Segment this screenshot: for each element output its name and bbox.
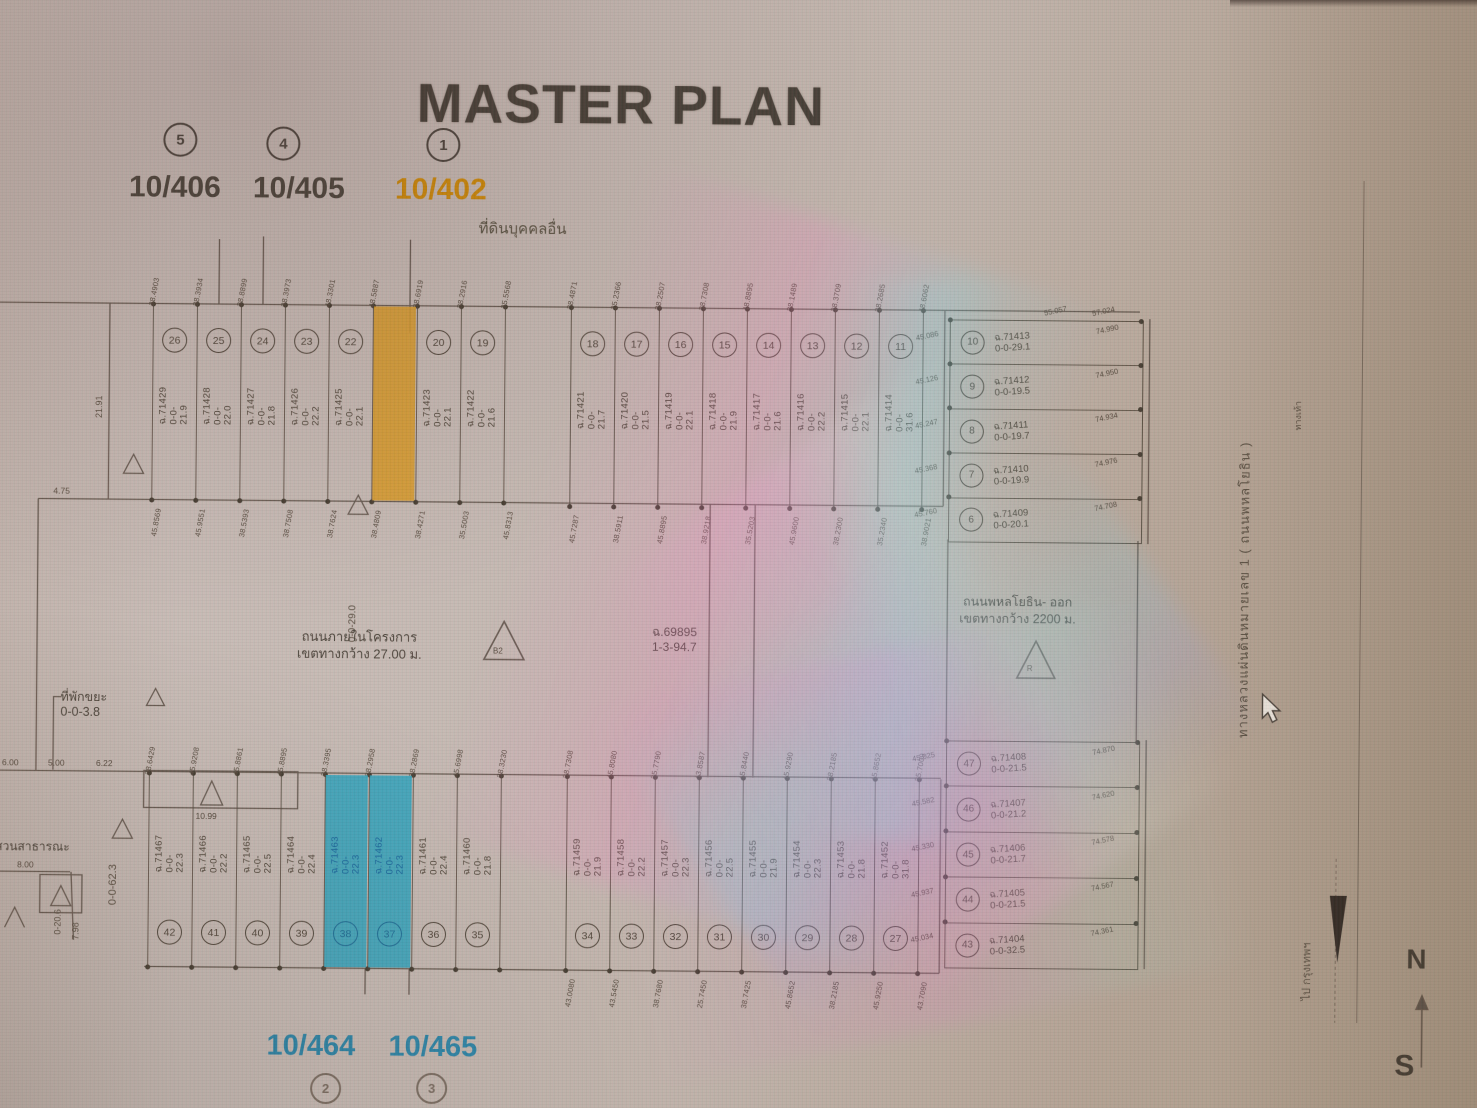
lot-number-circle: 8	[960, 419, 984, 443]
lot-label: ฉ.714260-0-22.2	[290, 388, 322, 426]
compass-south-label: S	[1394, 1049, 1414, 1083]
lot-number-circle: 17	[624, 332, 649, 357]
lot-area: 0-0-22.2	[627, 839, 648, 877]
lot-label: ฉ.714250-0-22.1	[334, 388, 366, 426]
triangle-waste	[146, 688, 164, 705]
lot-strip: 26ฉ.714290-0-21.9	[151, 303, 197, 499]
lot-strip	[371, 305, 417, 501]
lot-number-circle: 10	[961, 330, 985, 354]
lot-number-circle: 33	[619, 924, 644, 949]
lot-number-circle: 12	[844, 333, 869, 358]
lot-strip: 16ฉ.714190-0-22.1	[657, 308, 703, 507]
lot-label: ฉ.714570-0-22.3	[660, 840, 692, 878]
stem-lot25	[219, 239, 220, 304]
lot-number-circle: 16	[668, 332, 693, 357]
lot-area: 0-0-21.9	[583, 839, 604, 877]
lot-number-circle: 32	[663, 924, 688, 949]
lot-area: 0-0-21.5	[631, 392, 652, 430]
lot-strip: 36ฉ.714610-0-22.4	[411, 775, 457, 969]
lot-number-circle: 43	[955, 933, 979, 957]
internal-road-width: เขตทางกว้าง 27.00 ม.	[297, 645, 422, 663]
compass-arrow-head	[1416, 996, 1428, 1010]
lot-area: 0-0-32.5	[989, 945, 1025, 958]
lot-strip: 14ฉ.714170-0-21.6	[745, 309, 791, 508]
triangle-road-internal	[484, 621, 524, 659]
boundary-dot	[948, 317, 953, 322]
lot-label: ฉ.714280-0-22.0	[202, 387, 234, 425]
mid-parcel-right	[753, 505, 755, 778]
lot-area: 0-0-21.6	[763, 393, 784, 431]
lot-number-circle: 37	[377, 921, 402, 946]
lot-number-circle: 9	[960, 375, 984, 399]
lot-label: ฉ.714290-0-21.9	[158, 387, 190, 425]
lot-label: ฉ.71406 0-0-21.7	[990, 843, 1027, 866]
park-dim-line	[0, 871, 70, 872]
lot-area: 0-0-22.2	[301, 388, 322, 426]
boundary-dot	[1138, 452, 1143, 457]
lot-label: ฉ.714670-0-22.3	[154, 835, 186, 873]
mid-parcel-area: 1-3-94.7	[652, 640, 697, 655]
lot-number-circle: 41	[201, 920, 226, 945]
lot-label: ฉ.714230-0-22.1	[422, 389, 454, 427]
triangle-road-exit	[1017, 641, 1055, 678]
lot-number-circle: 22	[338, 329, 363, 354]
lot-area: 0-0-21.9	[759, 840, 780, 878]
lot-label: ฉ.714630-0-22.3	[330, 837, 362, 875]
lot-strip: 18ฉ.714210-0-21.7	[569, 307, 615, 506]
lot-number-circle: 44	[956, 888, 980, 912]
lot-area: 0-0-22.1	[675, 393, 696, 431]
lot-strip: 19ฉ.714220-0-21.6	[459, 306, 505, 502]
lot-label: ฉ.714150-0-22.1	[840, 394, 872, 432]
lot-number-circle: 20	[426, 330, 451, 355]
lot-strip: 30ฉ.714550-0-21.9	[741, 778, 787, 972]
lot-number-circle: 35	[465, 922, 490, 947]
lot-area: 0-0-21.6	[477, 389, 498, 427]
lot-strip: 17ฉ.714200-0-21.5	[613, 307, 659, 506]
dim-park-width: 8.00	[17, 859, 34, 869]
boundary-dot	[944, 738, 949, 743]
lot-number-circle: 23	[294, 329, 319, 354]
lot-strip: 28ฉ.714530-0-21.8	[829, 778, 875, 972]
lot-area: 0-0-21.7	[990, 854, 1026, 867]
lot-strip: 42ฉ.714670-0-22.3	[147, 772, 193, 966]
lot-area: 0-0-19.5	[994, 386, 1030, 399]
lot-number-circle: 34	[575, 923, 600, 948]
to-south-label: ไป กรุงเทพฯ	[1297, 943, 1316, 1001]
lot-area: 0-0-21.8	[257, 387, 278, 425]
lot-strip: 22ฉ.714250-0-22.1	[327, 305, 373, 501]
lot-area: 0-0-22.5	[715, 840, 736, 878]
lot-area: 0-0-22.3	[385, 837, 406, 875]
lot-strip: 15ฉ.714180-0-21.9	[701, 308, 747, 507]
lot-label: ฉ.714190-0-22.1	[664, 393, 696, 431]
lot-number-circle: 24	[250, 328, 275, 353]
sidewalk-label: ทางเท้า	[1291, 401, 1305, 431]
boundary-dot	[947, 450, 952, 455]
lot-number-circle: 31	[707, 924, 732, 949]
dim-5-00: 5.00	[48, 758, 65, 768]
highway-name-label: ทางหลวงแผ่นดินหมายเลข 1 ( ถนนพหลโยธิน )	[1232, 441, 1256, 738]
lot-area: 0-0-22.1	[851, 394, 872, 432]
lot-label: ฉ.714580-0-22.2	[616, 839, 648, 877]
lot-label: ฉ.714140-0-31.6	[884, 394, 916, 432]
lot-area: 0-0-21.9	[719, 393, 740, 431]
lot-strip: 33ฉ.714580-0-22.2	[609, 776, 655, 970]
lot-number-circle: 46	[956, 797, 980, 821]
exit-road-width: เขตทางกว้าง 2200 ม.	[959, 611, 1076, 629]
lot-area: 0-0-22.1	[433, 389, 454, 427]
lot-number-circle: 26	[162, 328, 187, 353]
boundary-dot	[1135, 740, 1140, 745]
lot-area: 0-0-29.1	[995, 342, 1031, 355]
internal-road-symbol: B2	[493, 646, 503, 655]
lot-strip: 32ฉ.714570-0-22.3	[653, 777, 699, 971]
dim-6-22: 6.22	[96, 758, 113, 768]
lot-area: 0-0-21.9	[169, 387, 190, 425]
lot-strip: 31ฉ.714560-0-22.5	[697, 777, 743, 971]
lot-number-circle: 28	[839, 925, 864, 950]
lot-label: ฉ.714560-0-22.5	[704, 840, 736, 878]
lot-number-circle: 30	[751, 925, 776, 950]
lot-label: ฉ.71408 0-0-21.5	[990, 753, 1027, 776]
lot-area: 0-0-21.8	[473, 838, 494, 876]
lot-strip: 38ฉ.714630-0-22.3	[323, 774, 369, 968]
lot-number-circle: 36	[421, 922, 446, 947]
lot-area: 0-0-22.4	[297, 836, 318, 874]
lot-number-circle: 45	[956, 843, 980, 867]
dim-6-00: 6.00	[2, 757, 19, 767]
dim-park-height2: 7.98	[70, 922, 80, 940]
boundary-dot	[943, 874, 948, 879]
lot-area: 0-0-21.5	[991, 763, 1027, 776]
lot-number-circle: 47	[957, 752, 981, 776]
exit-road-symbol: R	[1027, 664, 1033, 673]
lot-number-circle: 29	[795, 925, 820, 950]
park-square	[40, 874, 82, 912]
lot-label: ฉ.714200-0-21.5	[620, 392, 652, 430]
compass-arrow-line	[1421, 1004, 1422, 1068]
lot-number-circle: 7	[959, 463, 983, 487]
internal-road-label: ถนนภายในโครงการ เขตทางกว้าง 27.00 ม.	[297, 628, 422, 663]
lot-number-circle: 6	[959, 508, 983, 532]
lot-strip: 13ฉ.714160-0-22.2	[789, 309, 835, 508]
lot-number-circle: 40	[245, 920, 270, 945]
lot-label: ฉ.714540-0-22.3	[792, 841, 824, 879]
compass-north-label: N	[1406, 943, 1427, 975]
lot-label: ฉ.714220-0-21.6	[466, 389, 498, 427]
lot-label: ฉ.71412 0-0-19.5	[994, 376, 1031, 399]
band2-right-edge	[939, 779, 941, 973]
lot-label: ฉ.71410 0-0-19.9	[993, 464, 1030, 487]
lot-number-circle: 14	[756, 333, 781, 358]
boundary-dot	[1139, 319, 1144, 324]
highway-edge-line	[1357, 181, 1364, 1023]
lot-number-circle: 38	[333, 921, 358, 946]
lot-label: ฉ.714160-0-22.2	[796, 394, 828, 432]
lot-label: ฉ.71405 0-0-21.5	[989, 889, 1026, 912]
lot-label: ฉ.71411 0-0-19.7	[993, 420, 1030, 443]
lot-block: 47 ฉ.71408 0-0-21.546 ฉ.71407 0-0-21.245	[944, 740, 1140, 970]
lot-label: ฉ.714550-0-21.9	[748, 840, 780, 878]
lot-strip: 37ฉ.714620-0-22.3	[367, 774, 413, 968]
lot-label: ฉ.714270-0-21.8	[246, 387, 278, 425]
lot-label: ฉ.71413 0-0-29.1	[994, 331, 1031, 354]
dim-left-mid: 4.75	[53, 486, 70, 496]
lot-number-circle: 39	[289, 921, 314, 946]
park-label: สวนสาธารณะ	[0, 839, 70, 855]
lot-number-circle: 27	[883, 926, 908, 951]
boundary-dot	[1134, 921, 1139, 926]
lot-label: ฉ.71407 0-0-21.2	[990, 798, 1027, 821]
stem-lot24	[263, 236, 264, 304]
park-square-triangle	[51, 886, 71, 906]
band1-right-edge	[943, 310, 945, 506]
mouse-cursor	[1262, 694, 1280, 722]
boundary-dot	[943, 919, 948, 924]
lot-label: ฉ.714640-0-22.4	[286, 836, 318, 874]
lot-number-circle: 25	[206, 328, 231, 353]
lot-strip: 39ฉ.714640-0-22.4	[279, 774, 325, 968]
lot-area: 0-0-19.7	[994, 430, 1030, 443]
waste-area: 0-0-3.8	[60, 705, 107, 720]
lot-label: ฉ.714530-0-21.8	[836, 841, 868, 879]
block-gap-right	[1136, 541, 1138, 742]
boundary-dot	[1134, 876, 1139, 881]
lot-strip: 29ฉ.714540-0-22.3	[785, 778, 831, 972]
mid-parcel-deed: ฉ.69895	[652, 625, 697, 640]
chevron-mark	[5, 907, 25, 927]
left-inner-line	[108, 303, 110, 499]
lot-strip: 12ฉ.714150-0-22.1	[833, 309, 879, 508]
lot-area: 0-0-21.2	[991, 808, 1027, 821]
lot-label: ฉ.714660-0-22.2	[198, 836, 230, 874]
mid-parcel-left	[708, 504, 710, 777]
dim-park-height: 0-20.6	[52, 909, 62, 935]
photographed-screen: { "header": { "title": "MASTER PLAN", "n…	[0, 0, 1477, 1108]
lot-label: ฉ.714620-0-22.3	[374, 837, 406, 875]
dim-left-top: 21.91	[94, 395, 104, 418]
lot-label: ฉ.714180-0-21.9	[708, 393, 740, 431]
lot-number-circle: 11	[888, 334, 913, 359]
mid-parcel-annotation: ฉ.69895 1-3-94.7	[652, 625, 697, 655]
lot-strip: 34ฉ.714590-0-21.9	[565, 776, 611, 970]
internal-road-name: ถนนภายในโครงการ	[297, 628, 422, 646]
lot-area: 0-0-20.1	[993, 519, 1029, 532]
lot-number-circle: 18	[580, 331, 605, 356]
block-outer-edge-top	[1148, 319, 1150, 544]
lot-strip: 24ฉ.714270-0-21.8	[239, 304, 285, 500]
lot-number-circle: 42	[157, 920, 182, 945]
lot-area: 0-0-22.3	[803, 841, 824, 879]
south-direction-arrow	[1329, 896, 1347, 963]
lot-area: 0-0-22.4	[429, 838, 450, 876]
lot-area: 0-0-21.5	[990, 899, 1026, 912]
lot-strip: 40ฉ.714650-0-22.5	[235, 773, 281, 967]
lot-label: ฉ.71409 0-0-20.1	[993, 509, 1030, 532]
lot-area: 0-0-21.7	[587, 392, 608, 430]
waste-annotation: ที่พักขยะ 0-0-3.8	[60, 690, 107, 720]
lot-area: 0-0-21.8	[847, 841, 868, 879]
lot-label: ฉ.71404 0-0-32.5	[989, 934, 1026, 957]
lot-strip: 25ฉ.714280-0-22.0	[195, 304, 241, 500]
triangle-band1	[123, 454, 143, 473]
lot-number-circle: 19	[470, 330, 495, 355]
master-plan-drawing: MASTER PLAN 5 4 1 10/406 10/405 10/402 ท…	[0, 0, 1477, 1108]
photo-top-edge-shadow	[1230, 0, 1477, 7]
lot-strip: 23ฉ.714260-0-22.2	[283, 305, 329, 501]
lot-area: 0-0-22.3	[671, 840, 692, 878]
lot-area: 0-0-22.3	[341, 837, 362, 875]
lot-label: ฉ.714650-0-22.5	[242, 836, 274, 874]
block-outer-edge-bottom	[1144, 740, 1146, 969]
boundary-dot	[1137, 496, 1142, 501]
triangle-park	[112, 819, 132, 838]
exit-road-name: ถนนพหลโยธิน- ออก	[959, 594, 1076, 612]
lot-number-circle: 15	[712, 332, 737, 357]
lot-area: 0-0-22.3	[165, 835, 186, 873]
lot-label: ฉ.714210-0-21.7	[576, 392, 608, 430]
lot-area: 0-0-22.0	[213, 387, 234, 425]
boundary-dot	[946, 494, 951, 499]
lot-label: ฉ.714600-0-21.8	[462, 838, 494, 876]
lot-strip: 20ฉ.714230-0-22.1	[415, 306, 461, 502]
lot-strip: 41ฉ.714660-0-22.2	[191, 773, 237, 967]
lot-label: ฉ.714520-0-31.8	[880, 841, 912, 879]
lot-strip: 35ฉ.714600-0-21.8	[455, 775, 501, 969]
left-plot-edge	[36, 498, 38, 770]
lot-area: 0-0-22.2	[209, 836, 230, 874]
block-gap-left	[946, 539, 948, 740]
lot-area: 0-0-22.1	[345, 388, 366, 426]
lot-label: ฉ.714590-0-21.9	[572, 839, 604, 877]
lot-area: 0-0-19.9	[994, 475, 1030, 488]
waste-label: ที่พักขยะ	[60, 690, 107, 705]
lot-number-circle: 13	[800, 333, 825, 358]
park-area: 0-0-62.3	[107, 864, 119, 905]
lot-area: 0-0-22.2	[807, 394, 828, 432]
lot-area: 0-0-31.6	[895, 395, 916, 433]
exit-road-label: ถนนพหลโยธิน- ออก เขตทางกว้าง 2200 ม.	[959, 594, 1076, 629]
lot-area: 0-0-22.5	[253, 836, 274, 874]
lot-block: 10 ฉ.71413 0-0-29.19 ฉ.71412 0-0-19.58	[948, 319, 1144, 544]
lot-area: 0-0-31.8	[891, 842, 912, 880]
lot-label: ฉ.714610-0-22.4	[418, 837, 450, 875]
lot-label: ฉ.714170-0-21.6	[752, 393, 784, 431]
